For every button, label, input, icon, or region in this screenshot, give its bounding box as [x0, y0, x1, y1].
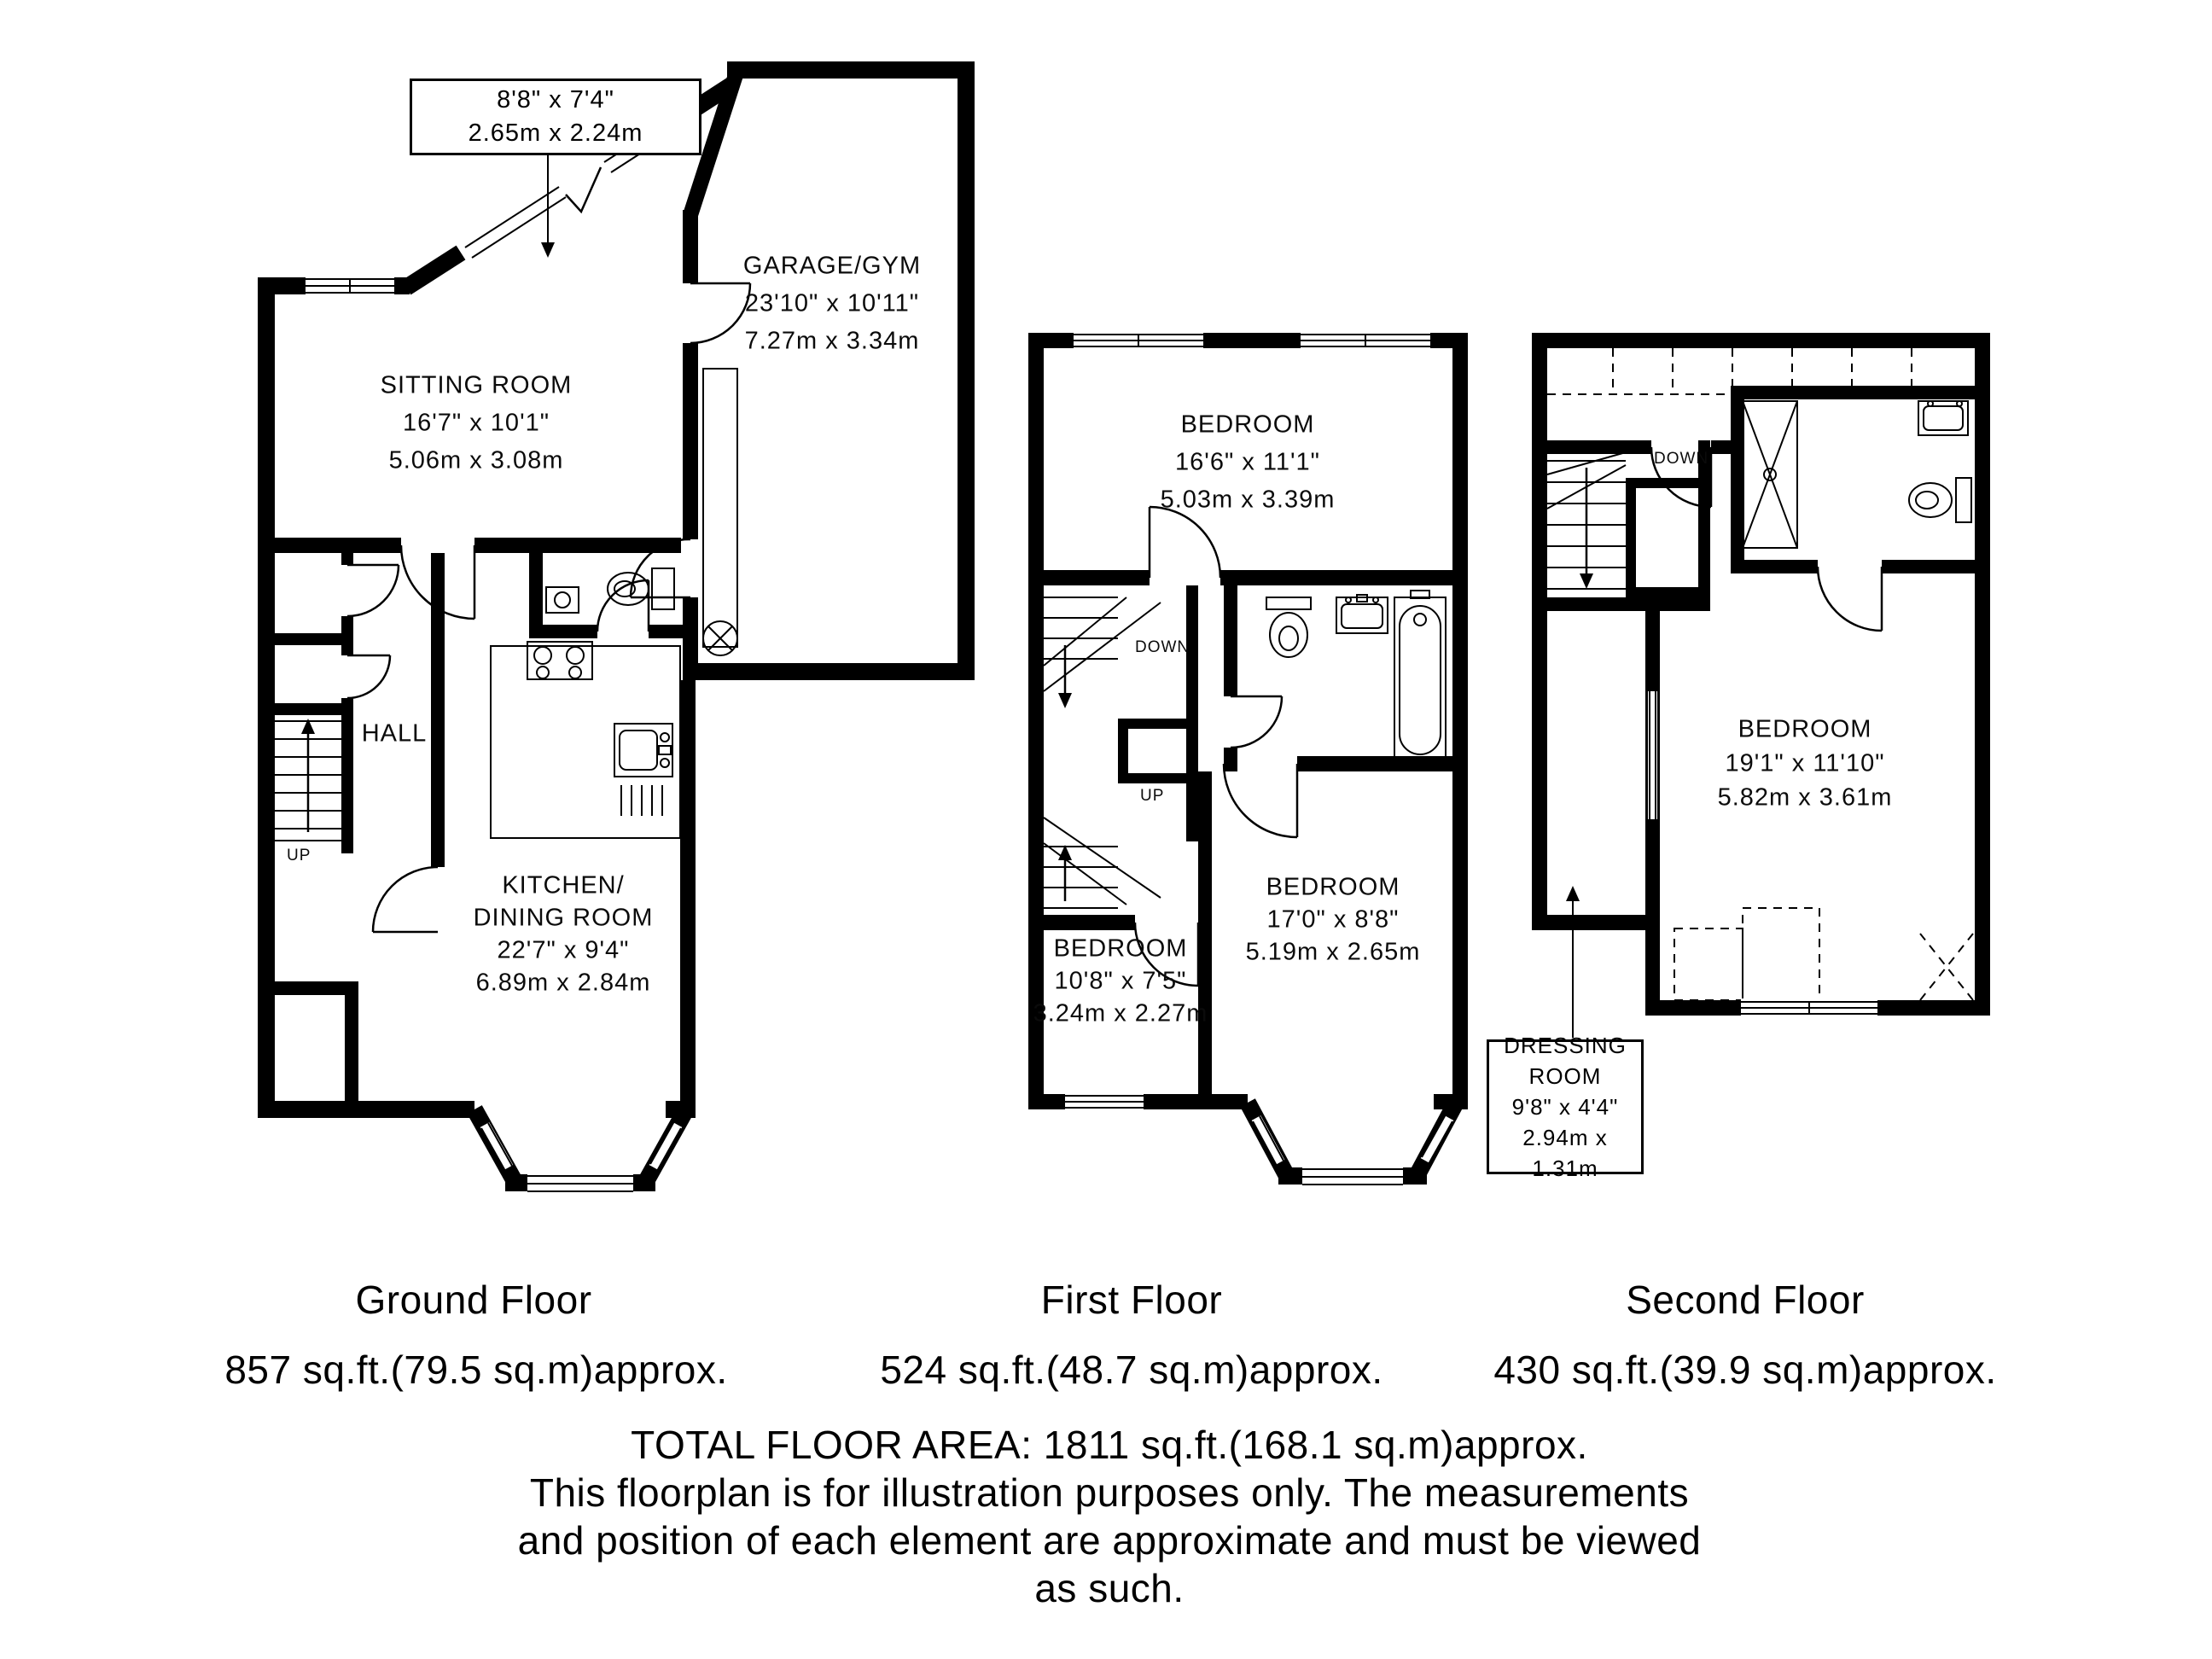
disclaimer-line-3: as such. — [1034, 1565, 1184, 1611]
dim-imperial-garage: 23'10" x 10'11" — [745, 290, 919, 318]
down-arrow — [541, 242, 555, 258]
dim-imperial-bedroom-left: 10'8" x 7'5" — [1055, 968, 1187, 996]
dim-metric-bedroom-2nd: 5.82m x 3.61m — [1718, 784, 1893, 812]
porch-dimension-callout: 8'8" x 7'4" 2.65m x 2.24m — [410, 79, 701, 155]
first-bathroom-fixtures — [1266, 591, 1446, 761]
second-bathroom-fixtures — [1743, 401, 1971, 548]
room-label-garage: GARAGE/GYM — [743, 253, 921, 281]
room-label-bedroom-top: BEDROOM — [1181, 411, 1315, 439]
stairs-up-label: UP — [1140, 787, 1164, 806]
caption-ground-title: Ground Floor — [355, 1277, 591, 1323]
room-label-kitchen-1: KITCHEN/ — [502, 872, 624, 900]
dim-metric-sitting: 5.06m x 3.08m — [389, 447, 564, 475]
ground-bay-window — [474, 1109, 686, 1193]
porch-callout-leader — [541, 150, 555, 258]
dim-metric-kitchen: 6.89m x 2.84m — [476, 969, 651, 998]
dim-metric-garage: 7.27m x 3.34m — [745, 328, 920, 356]
second-floor-plan — [1532, 333, 1990, 1038]
disclaimer-line-1: This floorplan is for illustration purpo… — [530, 1470, 1689, 1516]
kitchen-sink-icon — [614, 724, 672, 816]
dressing-name-2: ROOM — [1529, 1061, 1602, 1091]
ground-floor-plan — [258, 61, 975, 1193]
second-wardrobe-dashed — [1674, 908, 1973, 1000]
stove-icon — [527, 642, 592, 679]
disclaimer-line-2: and position of each element are approxi… — [518, 1517, 1702, 1563]
caption-ground-area: 857 sq.ft.(79.5 sq.m)approx. — [224, 1347, 727, 1393]
room-label-bedroom-right: BEDROOM — [1266, 874, 1400, 902]
total-floor-area: TOTAL FLOOR AREA: 1811 sq.ft.(168.1 sq.m… — [631, 1422, 1588, 1468]
room-label-kitchen-2: DINING ROOM — [474, 905, 654, 933]
dim-metric-bedroom-left: 3.24m x 2.27m — [1033, 1000, 1208, 1028]
shower-icon — [1743, 401, 1797, 548]
caption-first-area: 524 sq.ft.(48.7 sq.m)approx. — [880, 1347, 1382, 1393]
dressing-imperial: 9'8" x 4'4" — [1512, 1091, 1619, 1122]
dim-imperial-sitting: 16'7" x 10'1" — [403, 410, 550, 438]
floorplan-drawing — [0, 0, 2212, 1659]
caption-second-title: Second Floor — [1626, 1277, 1865, 1323]
dressing-metric: 2.94m x 1.31m — [1489, 1122, 1641, 1184]
dressing-callout-leader — [1566, 886, 1580, 1038]
sink-icon — [1918, 401, 1968, 435]
stairs-down-label: DOWN — [1654, 450, 1708, 469]
first-bay-window — [1248, 1103, 1456, 1186]
bathtub-icon — [1394, 591, 1446, 761]
floorplan-page: 8'8" x 7'4" 2.65m x 2.24m SITTING ROOM 1… — [0, 0, 2212, 1659]
second-bay-window — [1741, 998, 1877, 1017]
toilet-icon — [1909, 478, 1971, 522]
ground-stairs-icon — [275, 719, 341, 841]
room-label-sitting: SITTING ROOM — [381, 372, 573, 400]
dressing-room-callout: DRESSING ROOM 9'8" x 4'4" 2.94m x 1.31m — [1487, 1039, 1644, 1174]
ground-fixtures — [491, 369, 737, 838]
dressing-name-1: DRESSING — [1504, 1030, 1627, 1061]
porch-imperial: 8'8" x 7'4" — [497, 84, 614, 117]
down-arrow — [1058, 693, 1072, 708]
second-dressing-window — [1648, 691, 1657, 819]
room-label-bedroom-left: BEDROOM — [1054, 935, 1188, 963]
dim-metric-bedroom-top: 5.03m x 3.39m — [1161, 486, 1336, 515]
wc-basin-icon — [546, 587, 579, 613]
stairs-up-label: UP — [287, 847, 311, 865]
caption-first-title: First Floor — [1041, 1277, 1223, 1323]
down-arrow — [1580, 573, 1593, 589]
stairs-down-label: DOWN — [1135, 638, 1190, 657]
dim-metric-bedroom-right: 5.19m x 2.65m — [1246, 939, 1421, 967]
dim-imperial-bedroom-2nd: 19'1" x 11'10" — [1725, 750, 1884, 778]
wc-toilet-icon — [608, 568, 674, 609]
front-door-mark — [566, 167, 601, 212]
dim-imperial-bedroom-right: 17'0" x 8'8" — [1267, 906, 1400, 934]
room-label-hall: HALL — [362, 720, 428, 748]
porch-metric: 2.65m x 2.24m — [469, 117, 643, 150]
garage-storage — [703, 369, 737, 647]
caption-second-area: 430 sq.ft.(39.9 sq.m)approx. — [1493, 1347, 1996, 1393]
dim-imperial-bedroom-top: 16'6" x 11'1" — [1175, 449, 1320, 477]
room-label-bedroom-2nd: BEDROOM — [1738, 716, 1872, 744]
dim-imperial-kitchen: 22'7" x 9'4" — [498, 937, 630, 965]
sink-icon — [1336, 595, 1388, 633]
second-stairs-icon — [1547, 452, 1626, 589]
up-arrow — [1566, 886, 1580, 901]
ceiling-light-icon — [703, 621, 737, 655]
toilet-icon — [1266, 597, 1311, 657]
